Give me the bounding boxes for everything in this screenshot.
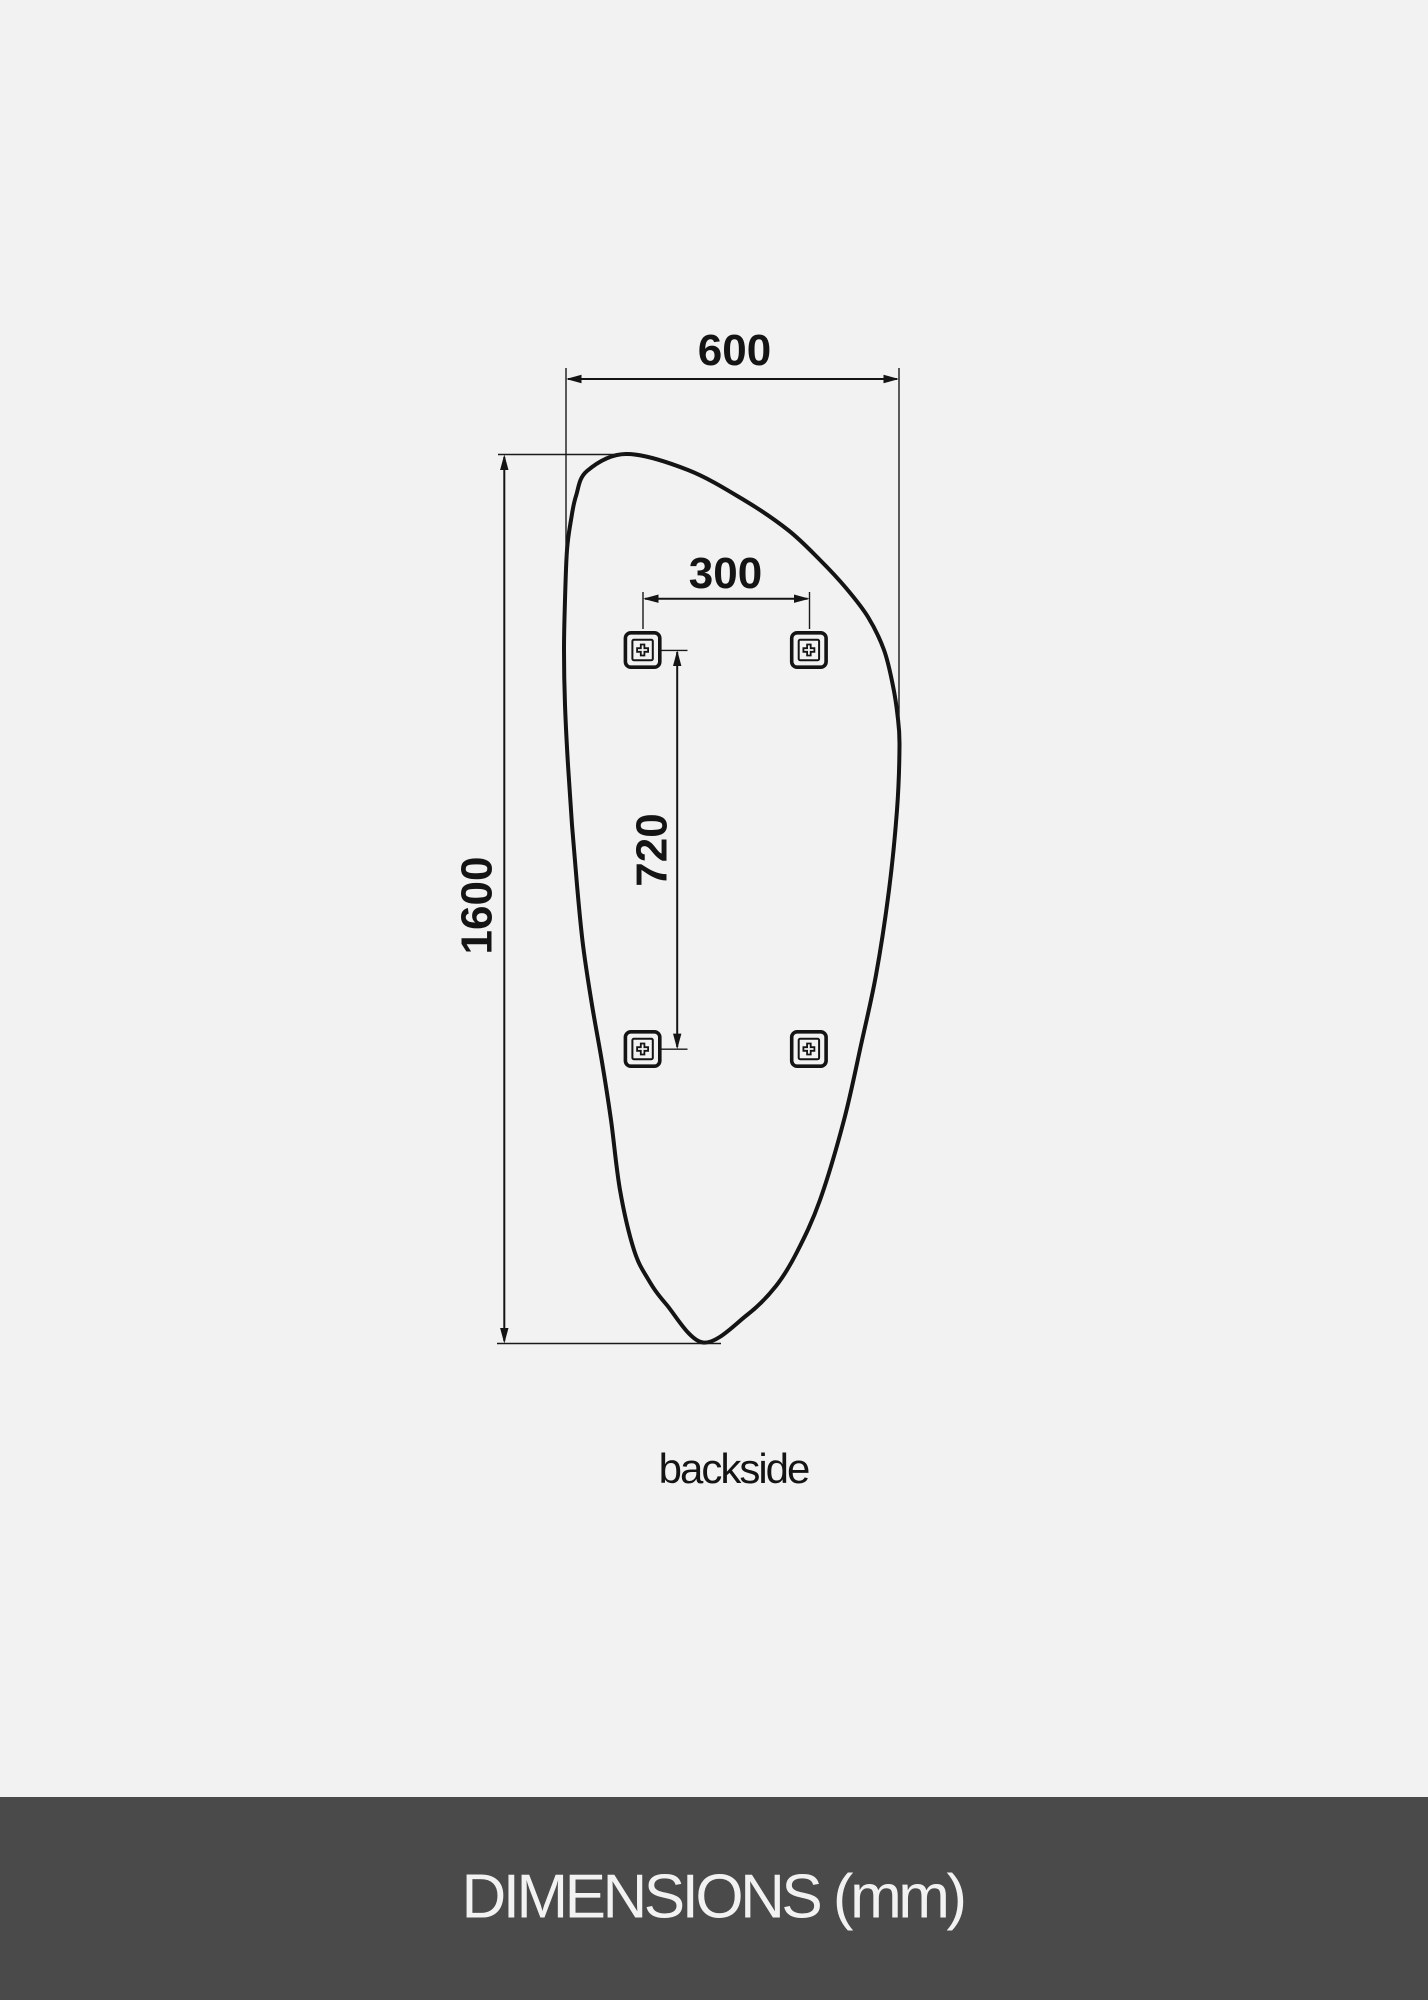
svg-text:DIMENSIONS (mm): DIMENSIONS (mm) (461, 1863, 963, 1932)
svg-text:1600: 1600 (453, 857, 502, 955)
svg-text:600: 600 (698, 326, 771, 375)
svg-text:300: 300 (689, 549, 762, 598)
svg-text:backside: backside (659, 1445, 809, 1492)
svg-text:720: 720 (628, 813, 677, 886)
